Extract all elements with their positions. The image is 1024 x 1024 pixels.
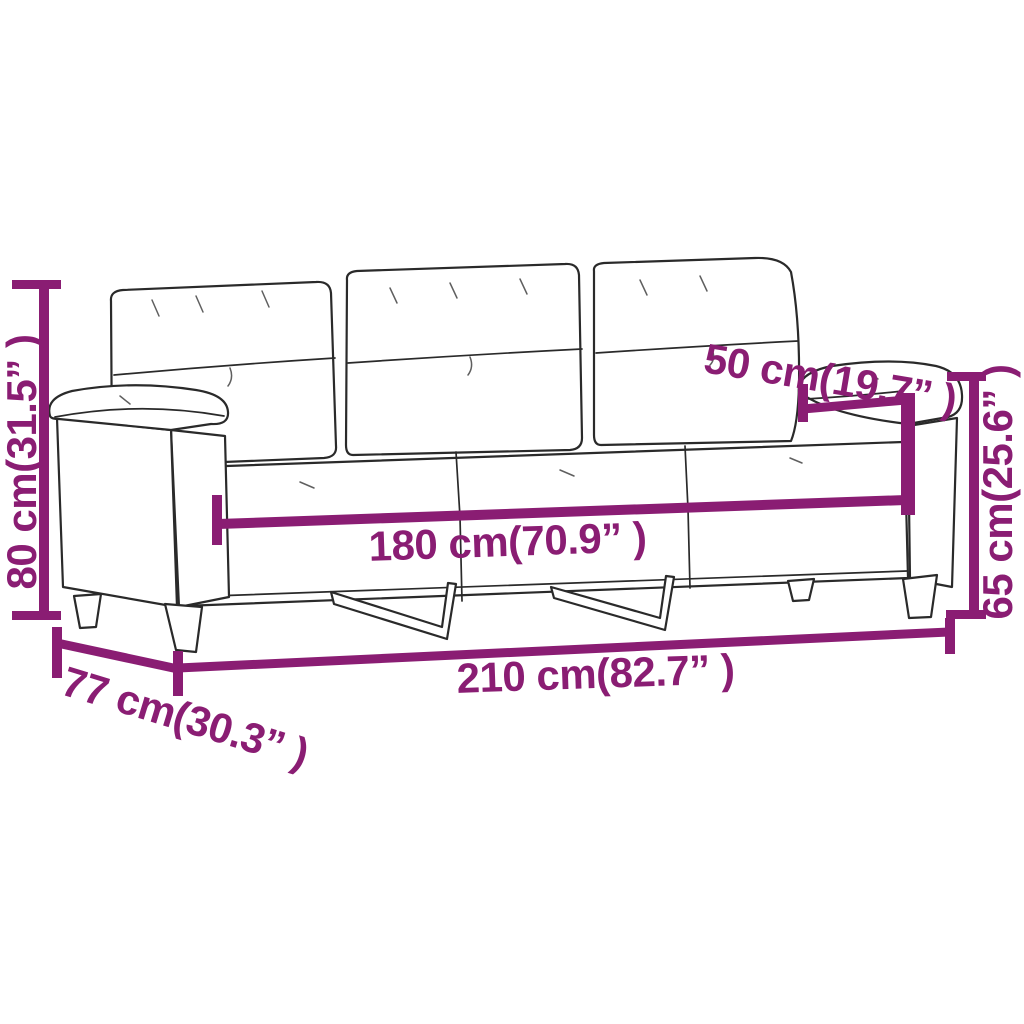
dimension-total-width-cap-right (945, 618, 955, 654)
left-armrest-front-face (57, 418, 177, 607)
dimension-arm-height-label: 65 cm(25.6” ) (974, 365, 1021, 620)
back-cushion-middle (346, 264, 582, 455)
dimension-seat-width-cap-right (901, 393, 915, 515)
dimension-height-cap-top (12, 280, 61, 289)
left-armrest (49, 385, 229, 607)
leg-front-left (165, 604, 202, 652)
dimension-total-width-label: 210 cm(82.7” ) (456, 645, 735, 702)
dimension-height-label: 80 cm(31.5” ) (0, 335, 45, 590)
leg-back-left (74, 594, 101, 628)
leg-back-right (788, 579, 814, 601)
dimension-depth-cap-left (52, 627, 62, 678)
leg-front-right (903, 575, 937, 618)
dimension-total-width: 210 cm(82.7” ) (178, 618, 955, 702)
dimension-depth-label: 77 cm(30.3” ) (56, 657, 314, 776)
dimension-height: 80 cm(31.5” ) (0, 280, 61, 620)
dimension-seat-width-label: 180 cm(70.9” ) (368, 513, 647, 570)
right-armrest-body (908, 418, 957, 587)
sofa-dimension-illustration: 80 cm(31.5” ) 65 cm(25.6” ) 50 cm(19.7” … (0, 0, 1024, 1024)
dimension-height-cap-bottom (12, 611, 61, 620)
dimension-seat-width-cap-left (212, 495, 222, 545)
product-dimension-diagram: 80 cm(31.5” ) 65 cm(25.6” ) 50 cm(19.7” … (0, 0, 1024, 1024)
sofa-line-art (49, 258, 962, 652)
